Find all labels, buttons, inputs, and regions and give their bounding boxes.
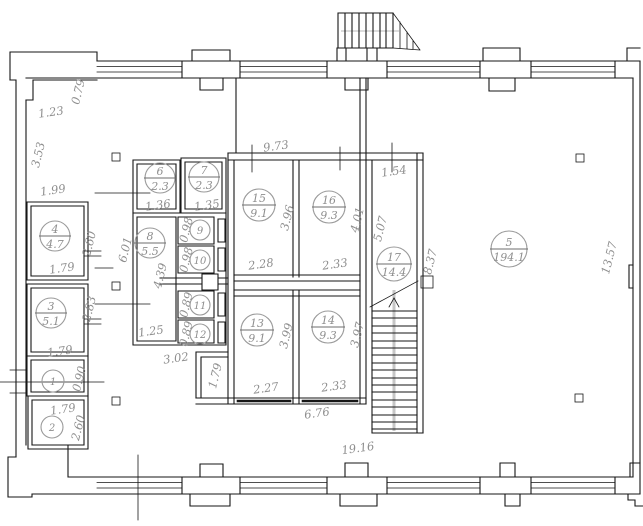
dimension-label: 2.60 — [68, 414, 88, 443]
dimension-label: 1.25 — [137, 322, 164, 339]
column-marker — [112, 397, 120, 405]
center-wall-left — [228, 153, 234, 404]
room-label-15: 159.1 — [242, 189, 276, 221]
windows — [97, 67, 615, 489]
duct-column — [160, 274, 228, 290]
dimension-label: 5.07 — [370, 214, 390, 243]
room-number: 1 — [50, 377, 56, 388]
dimension-label: 19.16 — [341, 439, 376, 457]
room-area: 9.3 — [320, 209, 338, 222]
bottom-pier-corner-right — [615, 463, 643, 506]
dimension-label: 6.76 — [303, 404, 330, 421]
room-area: 5.1 — [42, 315, 60, 328]
dimension-label: 1.99 — [39, 181, 66, 198]
dimension-label: 1.79 — [49, 400, 76, 417]
floor-plan: 1235.144.75194.162.372.385.59101112139.1… — [0, 0, 643, 526]
dimension-label: 1.79 — [46, 342, 73, 359]
center-wall-right — [360, 78, 372, 404]
room-number: 9 — [197, 226, 204, 237]
room-area: 4.7 — [45, 238, 64, 251]
left-wall — [10, 80, 26, 457]
column-marker — [112, 153, 120, 161]
exterior-stair — [338, 13, 420, 50]
dimension-label: 4.01 — [347, 206, 367, 235]
dimension-label: 0.90 — [69, 365, 89, 393]
room-area: 14.4 — [382, 266, 407, 279]
dimension-label: 9.73 — [262, 137, 289, 154]
room-area: 194.1 — [493, 251, 525, 264]
column-marker — [576, 154, 584, 162]
bottom-pier-b — [327, 463, 387, 506]
top-pier-a — [182, 50, 240, 90]
dimension-label: 1.35 — [193, 196, 220, 213]
dimension-label: 1.79 — [205, 362, 225, 390]
top-pier-c — [480, 48, 531, 91]
room-number: 15 — [252, 192, 266, 205]
dimension-label: 3.02 — [162, 349, 189, 366]
center-wall-mid — [293, 160, 299, 404]
interior-stair — [370, 281, 423, 433]
room-number: 17 — [387, 251, 401, 264]
center-mid-band — [234, 275, 360, 296]
dimension-label: 3.96 — [277, 204, 297, 232]
column-marker — [575, 394, 583, 402]
room-number: 2 — [48, 423, 55, 434]
dimension-label: 2.33 — [319, 377, 347, 395]
dimension-label: 2.83 — [79, 295, 99, 324]
room-area: 2.3 — [150, 180, 169, 193]
dimension-label: 0.98 — [176, 216, 196, 244]
bottom-windows — [97, 483, 615, 489]
bottom-pier-c — [480, 463, 531, 506]
room-label-8: 85.5 — [134, 228, 166, 258]
top-pier-b — [327, 48, 387, 90]
bottom-pier-a — [182, 464, 240, 506]
room-number: 6 — [157, 165, 164, 178]
dimension-label: 1.54 — [380, 162, 407, 179]
dimension-label: 3.97 — [347, 320, 367, 349]
room-number: 14 — [321, 314, 335, 327]
dimension-label: 1.23 — [37, 103, 64, 120]
top-pier-corner-right — [615, 48, 640, 78]
dimension-label: 0.89 — [176, 291, 196, 319]
room-number: 8 — [147, 230, 154, 243]
dimension-label: 6.01 — [115, 236, 135, 264]
room-label-1: 1 — [42, 370, 64, 392]
room-label-6: 62.3 — [144, 163, 176, 193]
bottom-wall-inner — [32, 445, 633, 477]
center-top-band — [228, 78, 423, 160]
dimension-label: 0.79 — [68, 78, 88, 106]
room-number: 4 — [51, 223, 59, 236]
room-number: 5 — [506, 236, 513, 249]
dimension-label: 2.33 — [320, 255, 348, 273]
room-number: 10 — [194, 256, 207, 267]
room-area: 5.5 — [141, 245, 159, 258]
room-label-3: 35.1 — [35, 298, 67, 328]
dimension-label: 1.79 — [48, 259, 75, 276]
room-number: 13 — [250, 317, 264, 330]
room-area: 9.1 — [250, 207, 268, 220]
room-label-5: 5194.1 — [490, 231, 528, 267]
partition-walls — [27, 78, 423, 449]
room-label-2: 2 — [41, 416, 63, 438]
column-markers — [112, 153, 584, 405]
dimension-label: 0.98 — [176, 246, 196, 274]
room-area: 9.3 — [319, 329, 337, 342]
room-label-16: 169.3 — [312, 191, 346, 223]
room-area: 2.3 — [194, 179, 213, 192]
room-number: 12 — [194, 330, 207, 341]
dimension-label: 1.36 — [144, 196, 171, 213]
room-area: 9.1 — [248, 332, 266, 345]
floor-plan-canvas: 1235.144.75194.162.372.385.59101112139.1… — [0, 0, 643, 526]
dimension-label: 2.27 — [251, 379, 280, 397]
room-label-14: 149.3 — [311, 311, 345, 343]
cluster-doors — [218, 219, 225, 343]
dimension-label: 4.39 — [150, 262, 170, 291]
corner-pier-top-left — [10, 52, 97, 80]
dimension-label: 2.60 — [79, 230, 99, 259]
dimension-label: 13.57 — [598, 239, 620, 275]
right-wall-pilaster — [629, 265, 633, 288]
room-labels: 1235.144.75194.162.372.385.59101112139.1… — [35, 162, 528, 438]
dimension-label: 2.28 — [246, 255, 274, 273]
dimension-label: 0.89 — [176, 320, 196, 348]
top-windows — [97, 67, 615, 73]
outer-walls — [8, 48, 643, 506]
right-wall — [633, 61, 640, 494]
room-label-13: 139.1 — [240, 314, 274, 346]
room-number: 16 — [322, 194, 336, 207]
column-marker — [112, 282, 120, 290]
room-label-7: 72.3 — [188, 162, 220, 192]
room-number: 11 — [194, 301, 207, 312]
dimension-label: 3.53 — [28, 141, 48, 169]
room-label-4: 44.7 — [39, 221, 71, 251]
stair-hall-wall-right — [417, 153, 423, 433]
room-number: 3 — [48, 300, 55, 313]
room-label-17: 1714.4 — [376, 247, 412, 281]
room-number: 7 — [201, 164, 208, 177]
